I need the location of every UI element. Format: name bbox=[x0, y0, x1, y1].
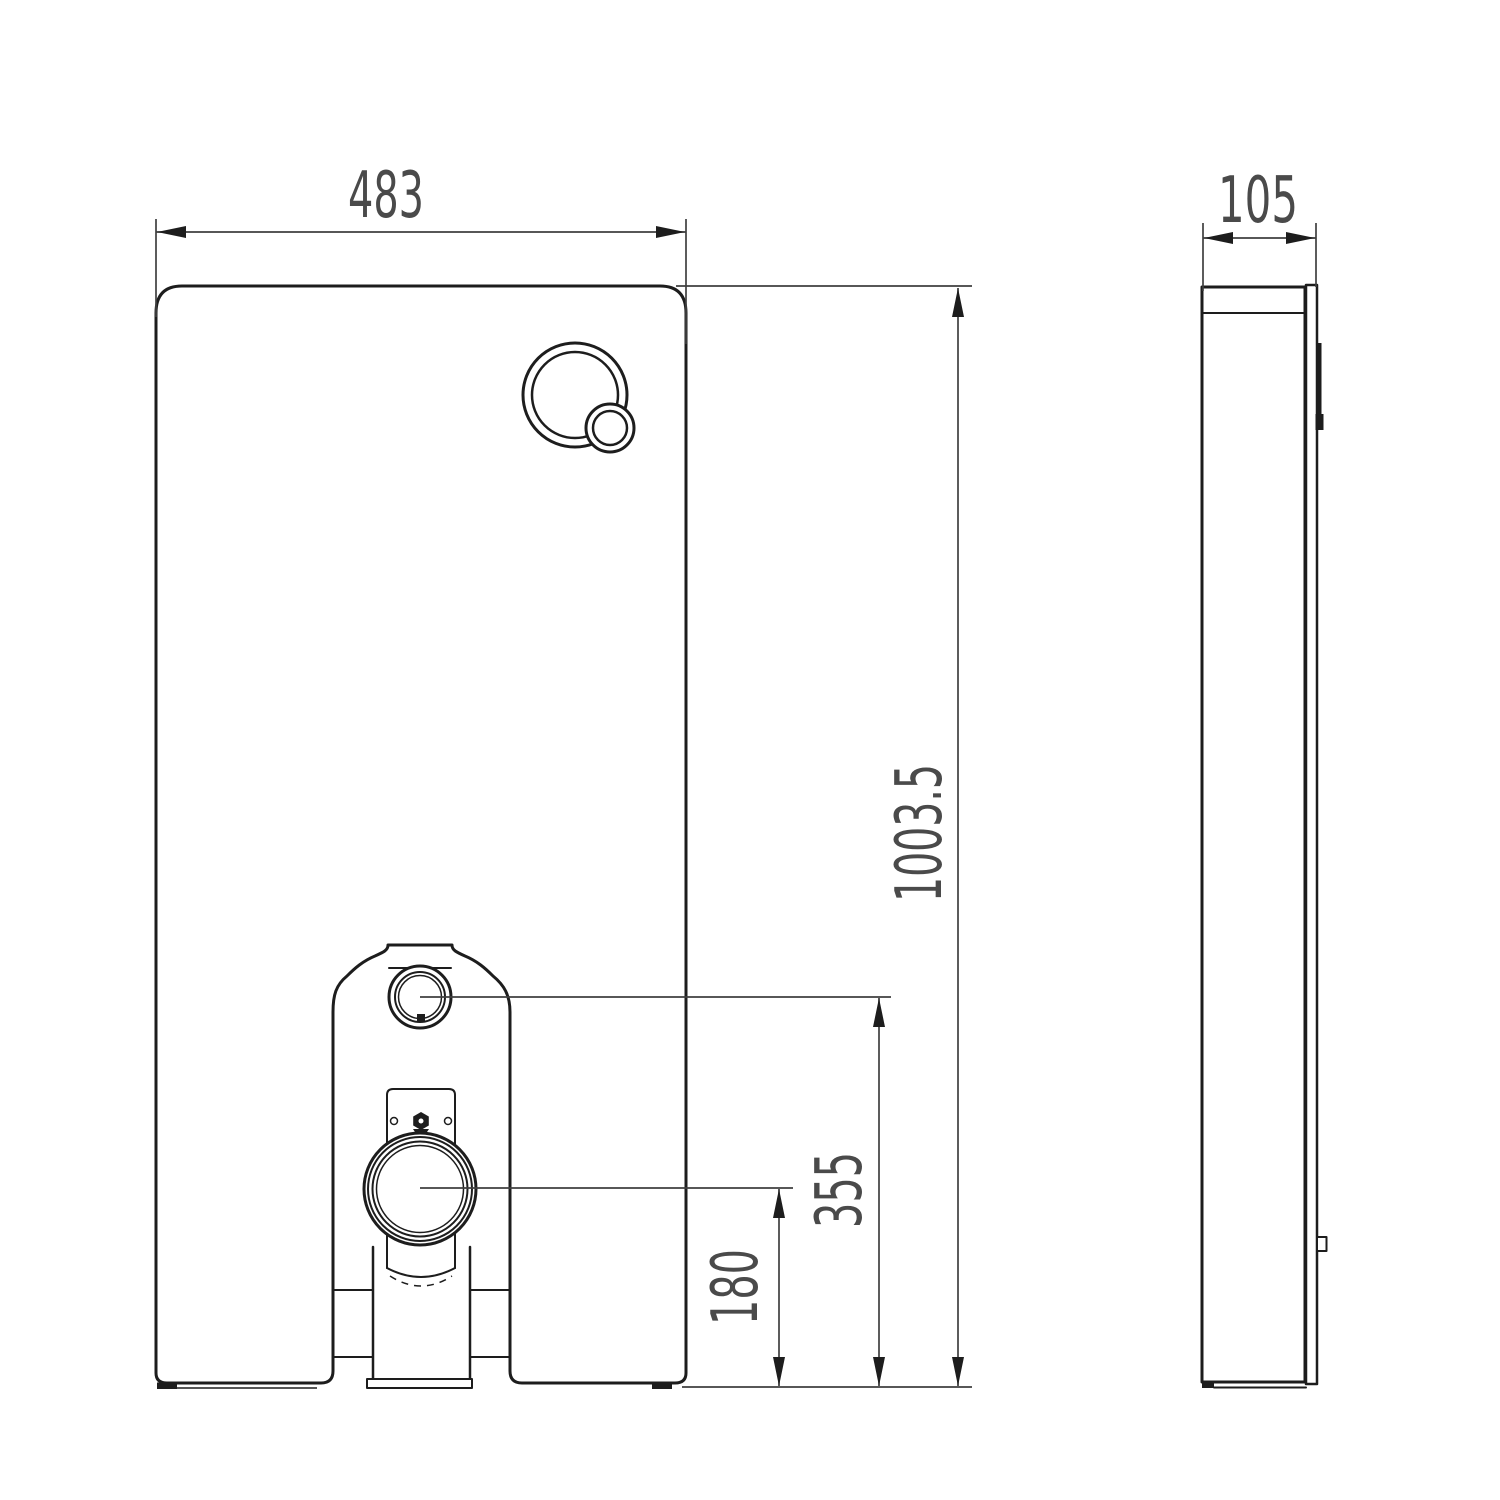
side-view bbox=[1202, 285, 1327, 1388]
side-glass-step bbox=[1317, 1237, 1327, 1251]
side-flush-button-nub bbox=[1316, 414, 1324, 430]
support-leg bbox=[367, 1247, 472, 1388]
dim-side-depth-label: 105 bbox=[1218, 164, 1298, 238]
drain-outlet bbox=[364, 1133, 476, 1245]
dim-side-depth: 105 bbox=[1203, 164, 1316, 291]
frame-rails bbox=[334, 1290, 509, 1357]
technical-drawing-canvas: 483 105 1003.5 355 180 bbox=[0, 0, 1500, 1500]
drawing-sheet: 483 105 1003.5 355 180 bbox=[0, 0, 1500, 1500]
dim-overall-height-label: 1003.5 bbox=[883, 764, 957, 902]
dim-inlet-height-label: 355 bbox=[803, 1152, 877, 1228]
inlet-tick bbox=[417, 1014, 425, 1021]
leg-foot bbox=[367, 1379, 472, 1388]
front-view bbox=[156, 286, 686, 1389]
side-flush-button-profile bbox=[1317, 343, 1322, 416]
dim-front-width-label: 483 bbox=[348, 159, 424, 233]
dim-outlet-height-label: 180 bbox=[699, 1249, 773, 1325]
side-body bbox=[1202, 287, 1305, 1382]
side-glass-panel bbox=[1306, 285, 1317, 1384]
outlet-trap bbox=[387, 1268, 455, 1286]
